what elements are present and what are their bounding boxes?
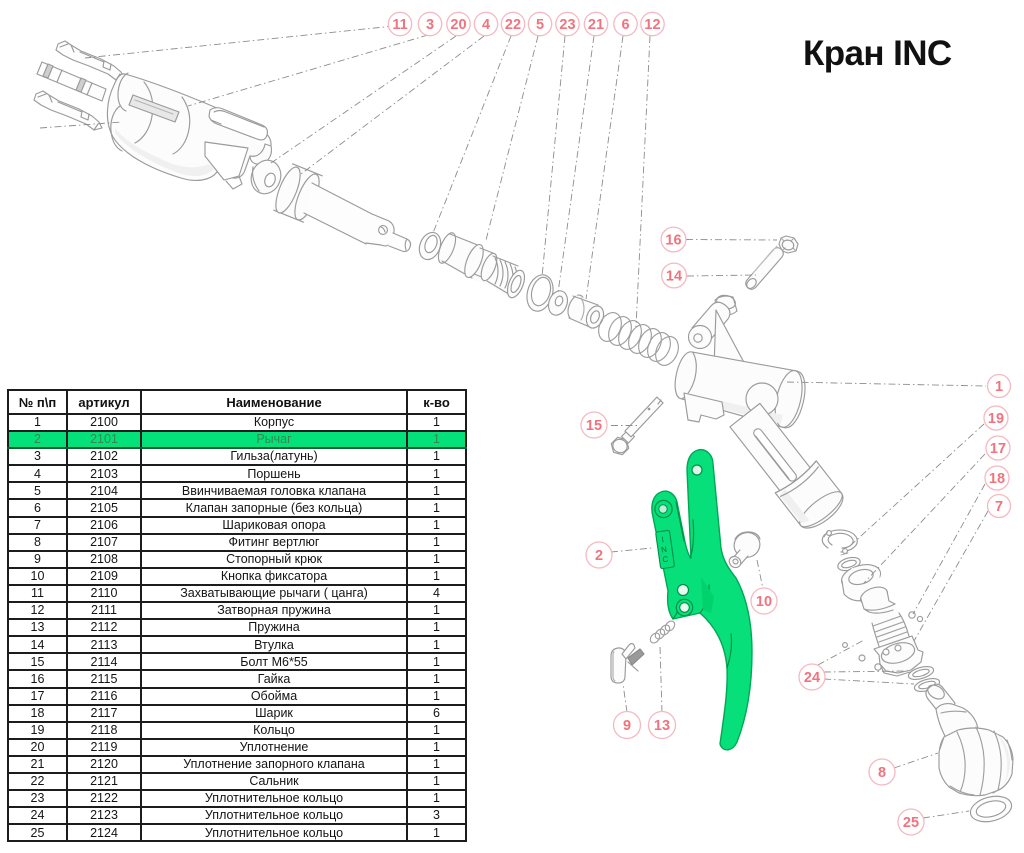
svg-text:10: 10: [756, 594, 772, 610]
svg-text:16: 16: [665, 233, 681, 249]
svg-text:22: 22: [505, 17, 521, 33]
svg-text:23: 23: [559, 17, 575, 33]
svg-text:15: 15: [586, 418, 602, 434]
svg-text:20: 20: [450, 17, 466, 33]
svg-text:1: 1: [995, 379, 1003, 395]
svg-text:7: 7: [995, 499, 1003, 515]
svg-text:13: 13: [654, 718, 670, 734]
svg-text:14: 14: [666, 269, 682, 285]
svg-text:24: 24: [804, 670, 820, 686]
svg-text:12: 12: [644, 17, 660, 33]
svg-text:3: 3: [426, 17, 434, 33]
svg-text:17: 17: [990, 441, 1006, 457]
svg-text:18: 18: [989, 471, 1005, 487]
svg-text:8: 8: [878, 765, 886, 781]
svg-text:11: 11: [392, 17, 407, 33]
svg-text:25: 25: [903, 815, 919, 831]
svg-text:9: 9: [623, 718, 631, 734]
svg-text:2: 2: [595, 548, 603, 564]
svg-text:6: 6: [621, 17, 629, 33]
svg-text:19: 19: [988, 411, 1004, 427]
svg-text:4: 4: [482, 17, 490, 33]
svg-text:21: 21: [588, 17, 604, 33]
svg-text:5: 5: [536, 17, 544, 33]
